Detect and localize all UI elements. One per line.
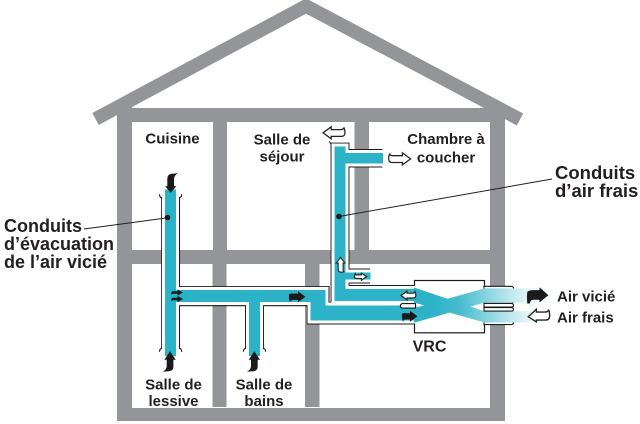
svg-text:Salle de: Salle de bbox=[254, 132, 311, 149]
svg-text:Salle de: Salle de bbox=[145, 377, 202, 394]
svg-text:lessive: lessive bbox=[148, 393, 198, 410]
svg-text:séjour: séjour bbox=[259, 149, 304, 166]
svg-text:Salle de: Salle de bbox=[236, 377, 293, 394]
svg-text:d’air frais: d’air frais bbox=[555, 180, 638, 201]
svg-text:bains: bains bbox=[244, 393, 283, 410]
svg-text:de l’air vicié: de l’air vicié bbox=[4, 252, 107, 272]
svg-text:Conduits: Conduits bbox=[4, 216, 82, 236]
svg-text:VRC: VRC bbox=[413, 339, 447, 356]
svg-text:Chambre à: Chambre à bbox=[407, 131, 485, 148]
svg-text:d’évacuation: d’évacuation bbox=[4, 234, 114, 254]
svg-text:Cuisine: Cuisine bbox=[145, 131, 199, 148]
svg-text:coucher: coucher bbox=[417, 150, 476, 167]
svg-text:Air vicié: Air vicié bbox=[557, 289, 615, 306]
svg-text:Air frais: Air frais bbox=[557, 310, 614, 327]
